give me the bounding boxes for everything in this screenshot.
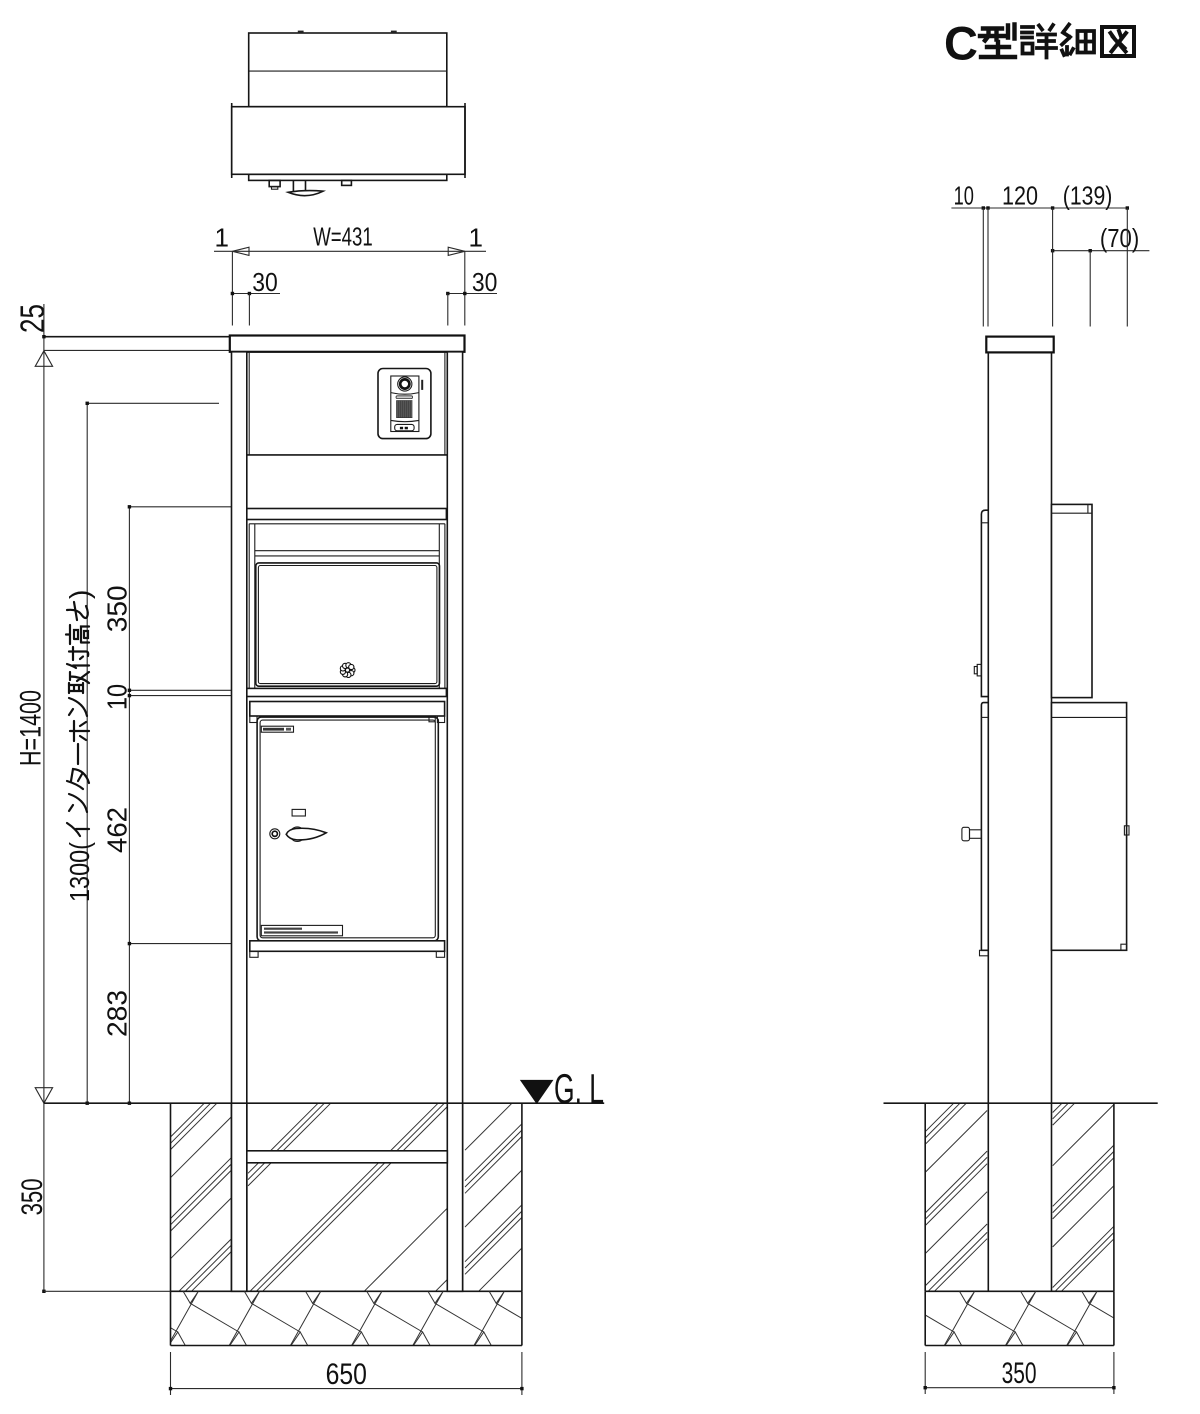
svg-text:10: 10	[102, 684, 133, 710]
svg-text:G. L: G. L	[554, 1065, 604, 1112]
svg-text:(70): (70)	[1100, 223, 1139, 253]
svg-text:(139): (139)	[1063, 181, 1113, 211]
svg-text:): )	[64, 590, 95, 599]
svg-text:30: 30	[252, 267, 277, 297]
svg-text:120: 120	[1002, 181, 1038, 211]
svg-text:283: 283	[102, 990, 133, 1037]
svg-text:350: 350	[16, 1178, 49, 1215]
svg-text:H=1400: H=1400	[15, 690, 48, 766]
svg-text:1: 1	[215, 223, 229, 253]
svg-text:10: 10	[954, 181, 974, 211]
svg-text:350: 350	[102, 585, 133, 632]
svg-text:350: 350	[1002, 1357, 1037, 1390]
svg-text:1300(: 1300(	[64, 841, 95, 902]
svg-text:30: 30	[472, 267, 498, 297]
svg-text:C: C	[944, 17, 978, 70]
svg-text:25: 25	[14, 304, 52, 333]
svg-text:462: 462	[102, 807, 133, 853]
svg-text:1: 1	[469, 223, 483, 253]
svg-text:650: 650	[326, 1358, 367, 1391]
svg-text:W=431: W=431	[313, 222, 373, 252]
